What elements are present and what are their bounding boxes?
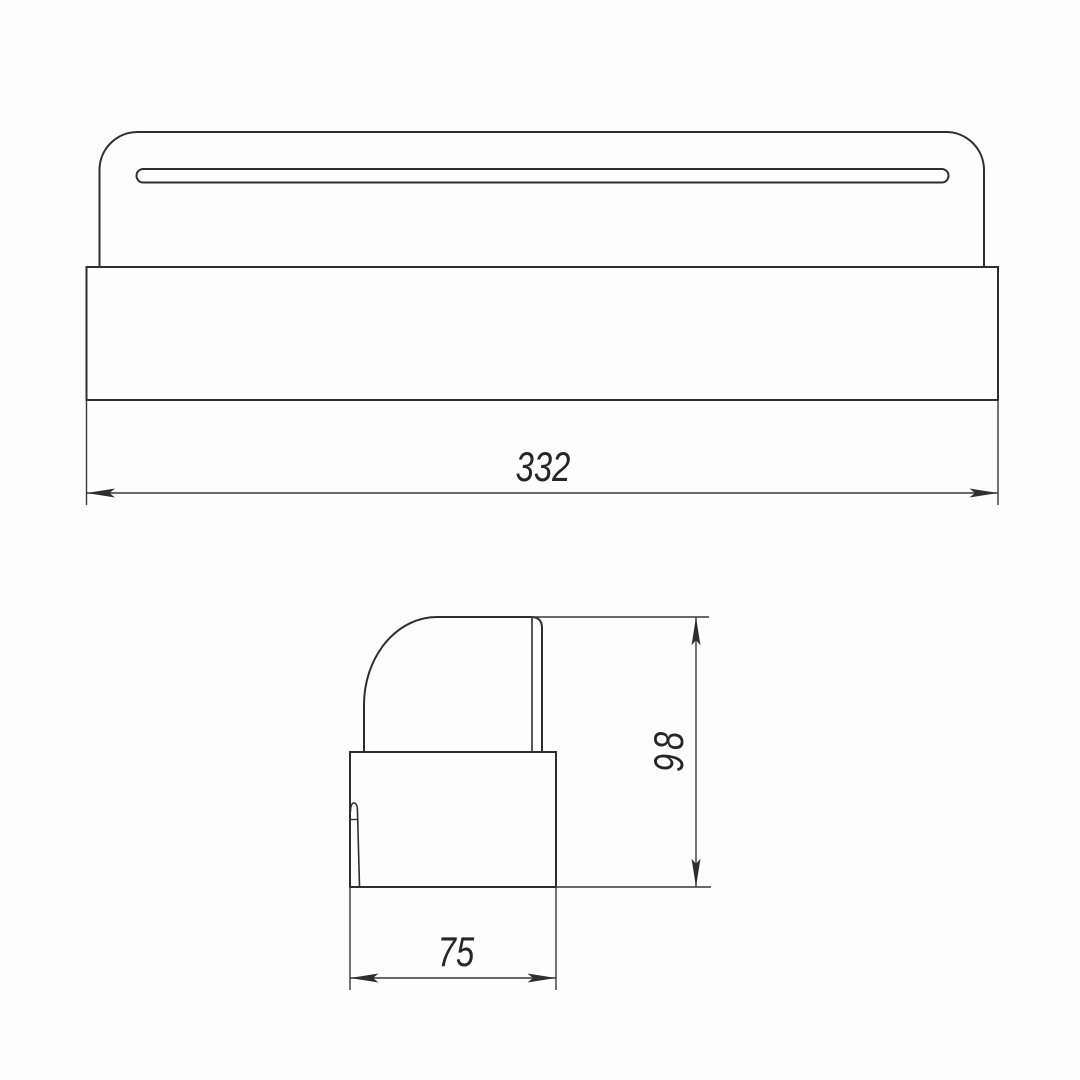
svg-text:332: 332 xyxy=(516,443,571,490)
svg-text:75: 75 xyxy=(438,928,475,975)
svg-text:98: 98 xyxy=(645,728,692,772)
